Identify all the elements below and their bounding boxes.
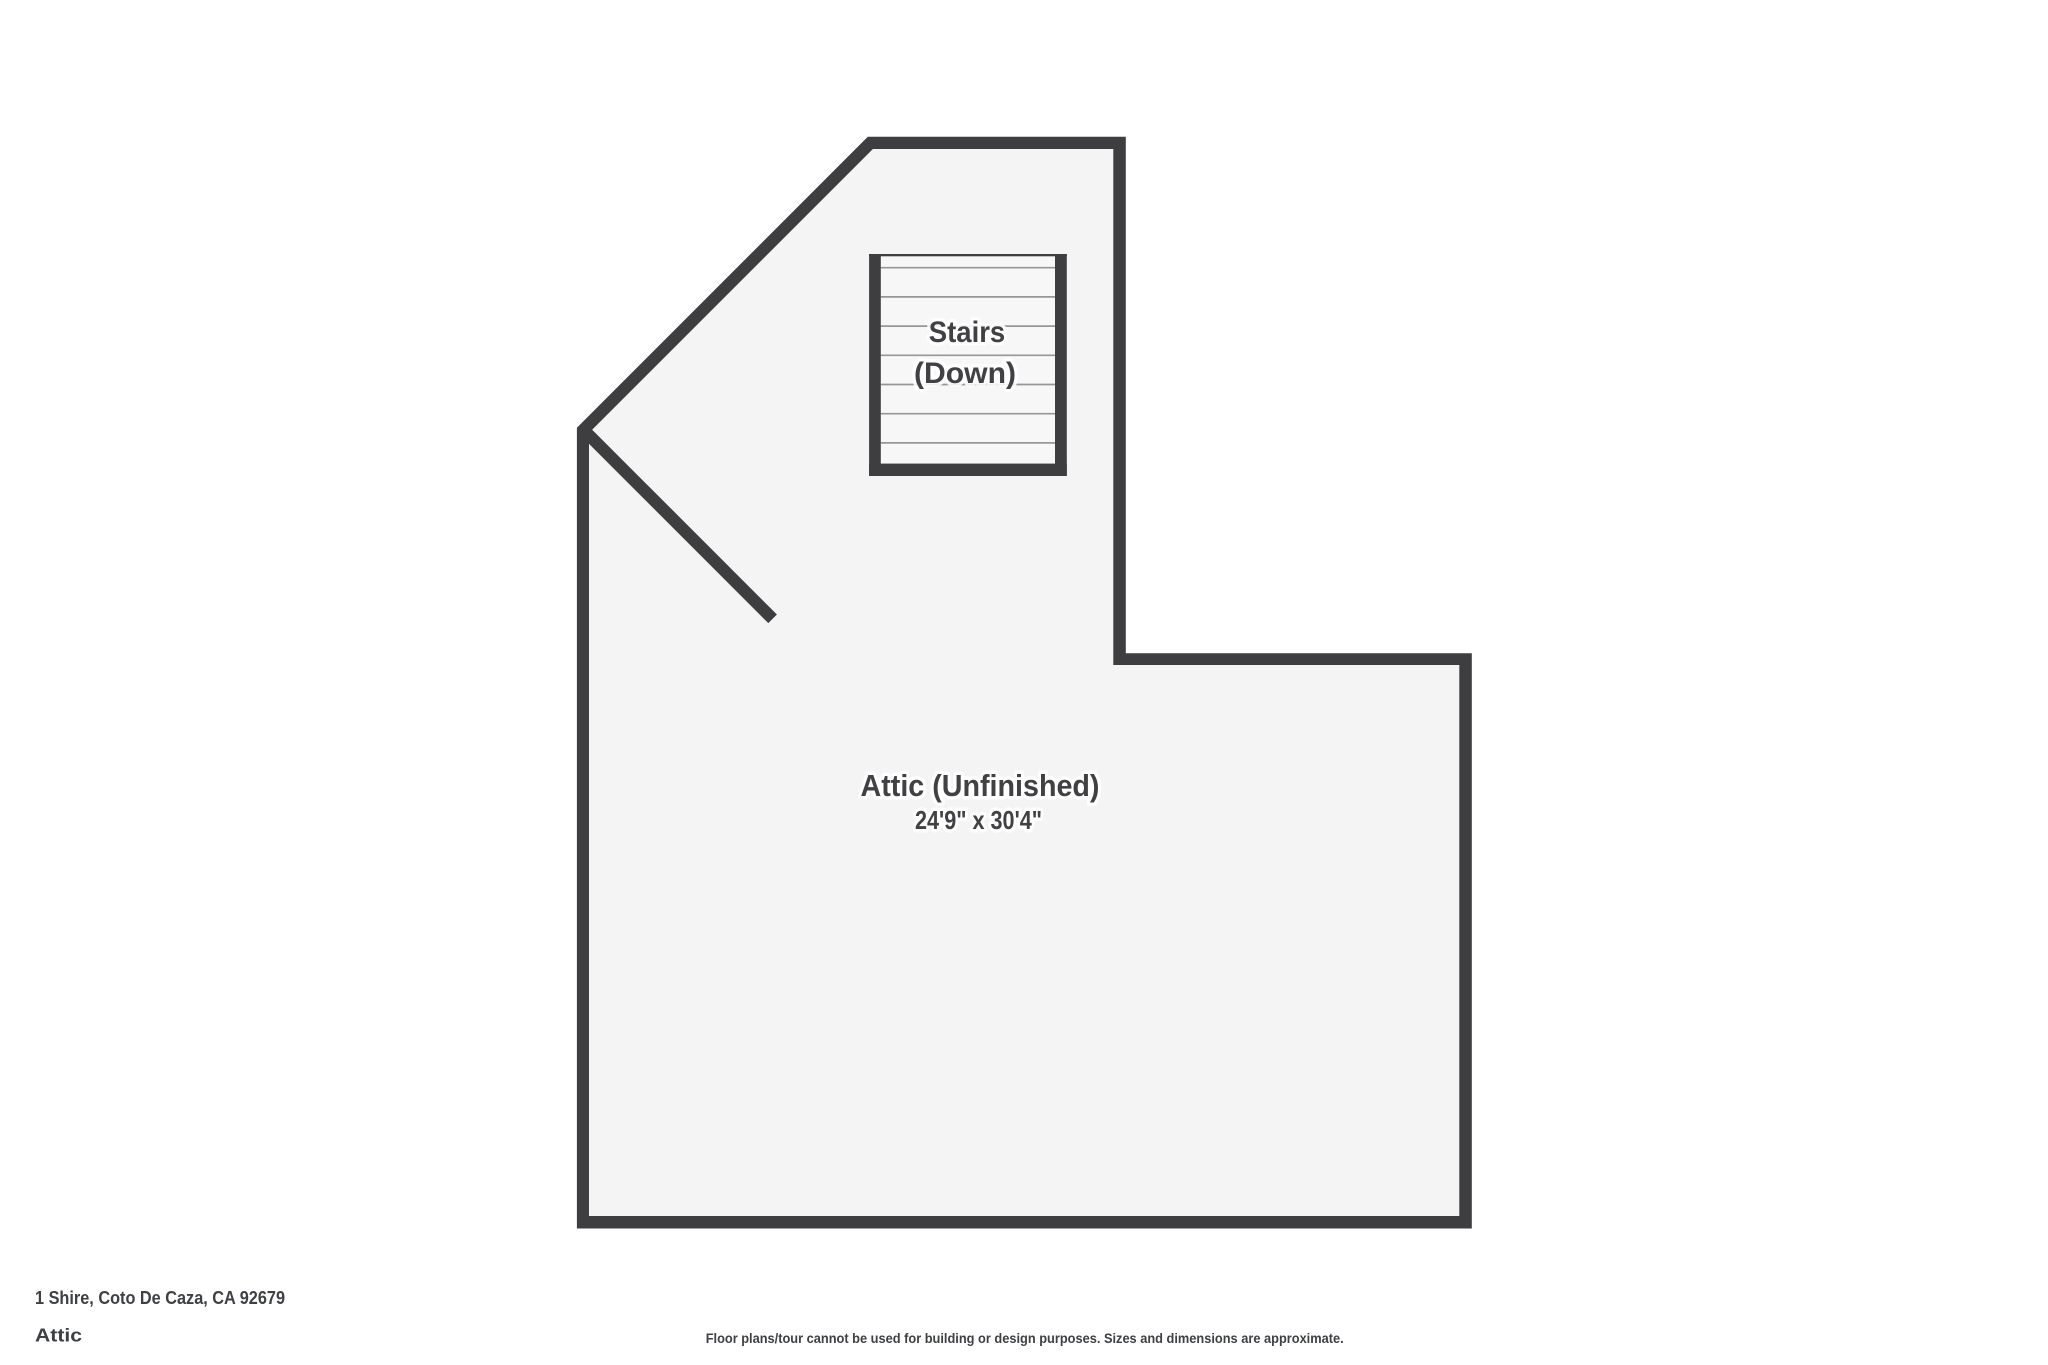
- svg-text:24'9" x 30'4": 24'9" x 30'4": [915, 805, 1042, 835]
- svg-text:Stairs: Stairs: [929, 316, 1006, 349]
- svg-text:Attic: Attic: [35, 1326, 82, 1346]
- svg-text:Floor plans/tour cannot be use: Floor plans/tour cannot be used for buil…: [706, 1330, 1344, 1346]
- svg-text:1 Shire, Coto De Caza, CA 9267: 1 Shire, Coto De Caza, CA 92679: [35, 1288, 285, 1308]
- svg-text:Attic (Unfinished): Attic (Unfinished): [861, 769, 1100, 803]
- svg-text:(Down): (Down): [914, 357, 1016, 390]
